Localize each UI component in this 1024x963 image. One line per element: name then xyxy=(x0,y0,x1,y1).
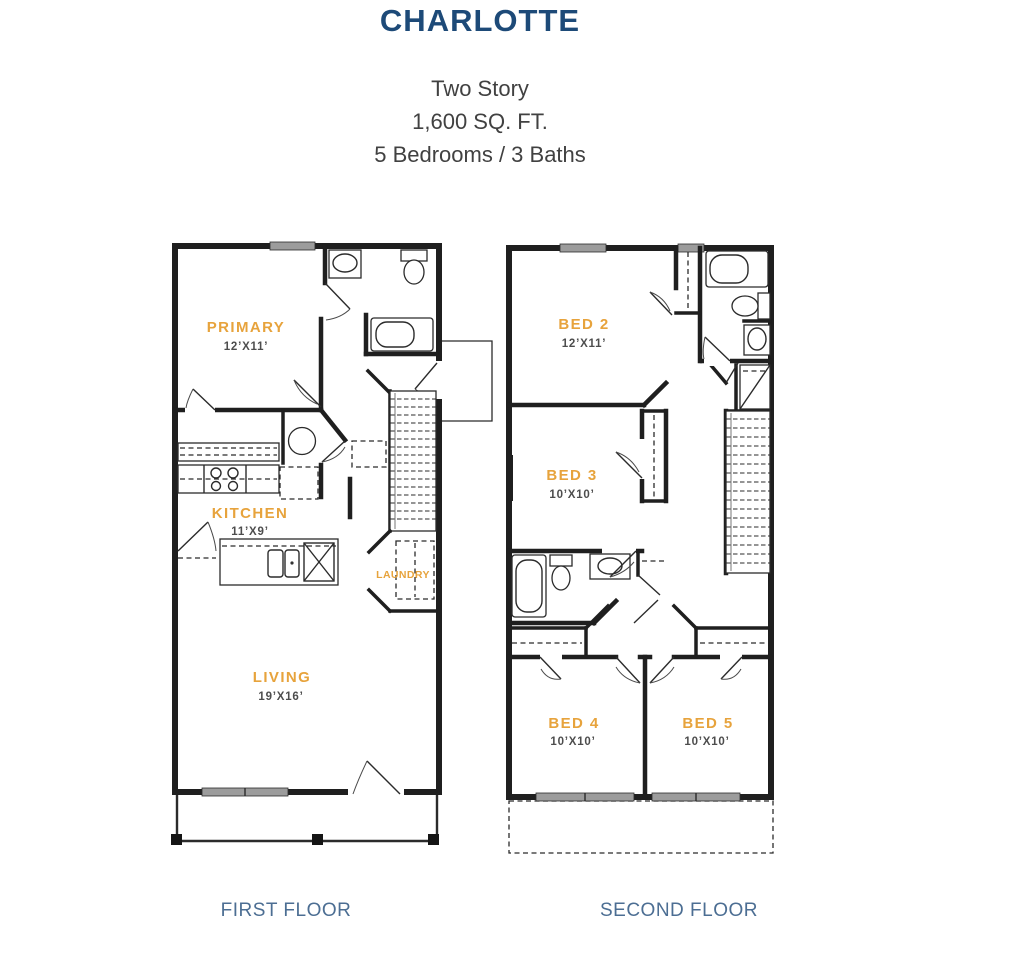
subtitle-sqft: 1,600 SQ. FT. xyxy=(0,105,960,138)
room-dims-living: 19’X16’ xyxy=(258,691,303,703)
front-porch xyxy=(171,795,439,845)
room-dims-kitchen: 11’X9’ xyxy=(231,526,268,538)
stairs xyxy=(726,411,770,573)
floor-plan-sheet: CHARLOTTE Two Story 1,600 SQ. FT. 5 Bedr… xyxy=(0,0,1024,963)
room-dims-primary: 12’X11’ xyxy=(224,341,269,353)
porch-post xyxy=(171,834,182,845)
kitchen-island xyxy=(220,539,338,585)
room-dims-bed3: 10’X10’ xyxy=(549,489,594,501)
room-dims-bed5: 10’X10’ xyxy=(684,736,729,748)
subtitle-beds-baths: 5 Bedrooms / 3 Baths xyxy=(0,138,960,171)
plan-subtitle: Two Story 1,600 SQ. FT. 5 Bedrooms / 3 B… xyxy=(0,72,960,171)
bathroom-sink xyxy=(744,325,770,355)
bathroom-sink xyxy=(590,554,630,579)
room-label-bed4: BED 4 xyxy=(548,715,599,732)
porch-post xyxy=(312,834,323,845)
bathroom-sink xyxy=(329,250,361,278)
second-floor-caption: SECOND FLOOR xyxy=(600,900,758,922)
room-dims-bed2: 12’X11’ xyxy=(562,338,607,350)
room-dims-bed4: 10’X10’ xyxy=(550,736,595,748)
room-label-bed2: BED 2 xyxy=(558,316,609,333)
bathtub-icon xyxy=(512,555,546,617)
porch-post xyxy=(428,834,439,845)
room-label-kitchen: KITCHEN xyxy=(212,505,288,522)
plan-title: CHARLOTTE xyxy=(0,0,960,42)
side-bump-out xyxy=(442,341,492,421)
utility-closet xyxy=(740,365,770,409)
bathtub-icon xyxy=(706,251,768,287)
stairs xyxy=(390,391,436,531)
room-label-living: LIVING xyxy=(253,669,311,686)
porch-roof-outline xyxy=(509,801,773,853)
powder-sink xyxy=(289,428,316,455)
room-label-bed5: BED 5 xyxy=(682,715,733,732)
first-floor-caption: FIRST FLOOR xyxy=(221,900,352,922)
subtitle-story: Two Story xyxy=(0,72,960,105)
bathtub-icon xyxy=(371,318,433,351)
counter-strip xyxy=(178,443,279,461)
toilet-icon xyxy=(550,555,572,590)
first-floor-plan: PRIMARY 12’X11’ KITCHEN 11’X9’ LAUNDRY L… xyxy=(170,241,502,859)
room-label-primary: PRIMARY xyxy=(207,319,285,336)
second-floor-plan: BED 2 12’X11’ BED 3 10’X10’ BED 4 10’X10… xyxy=(504,243,782,863)
left-wall-stub xyxy=(506,455,513,501)
room-label-laundry: LAUNDRY xyxy=(376,569,430,581)
room-label-bed3: BED 3 xyxy=(546,467,597,484)
